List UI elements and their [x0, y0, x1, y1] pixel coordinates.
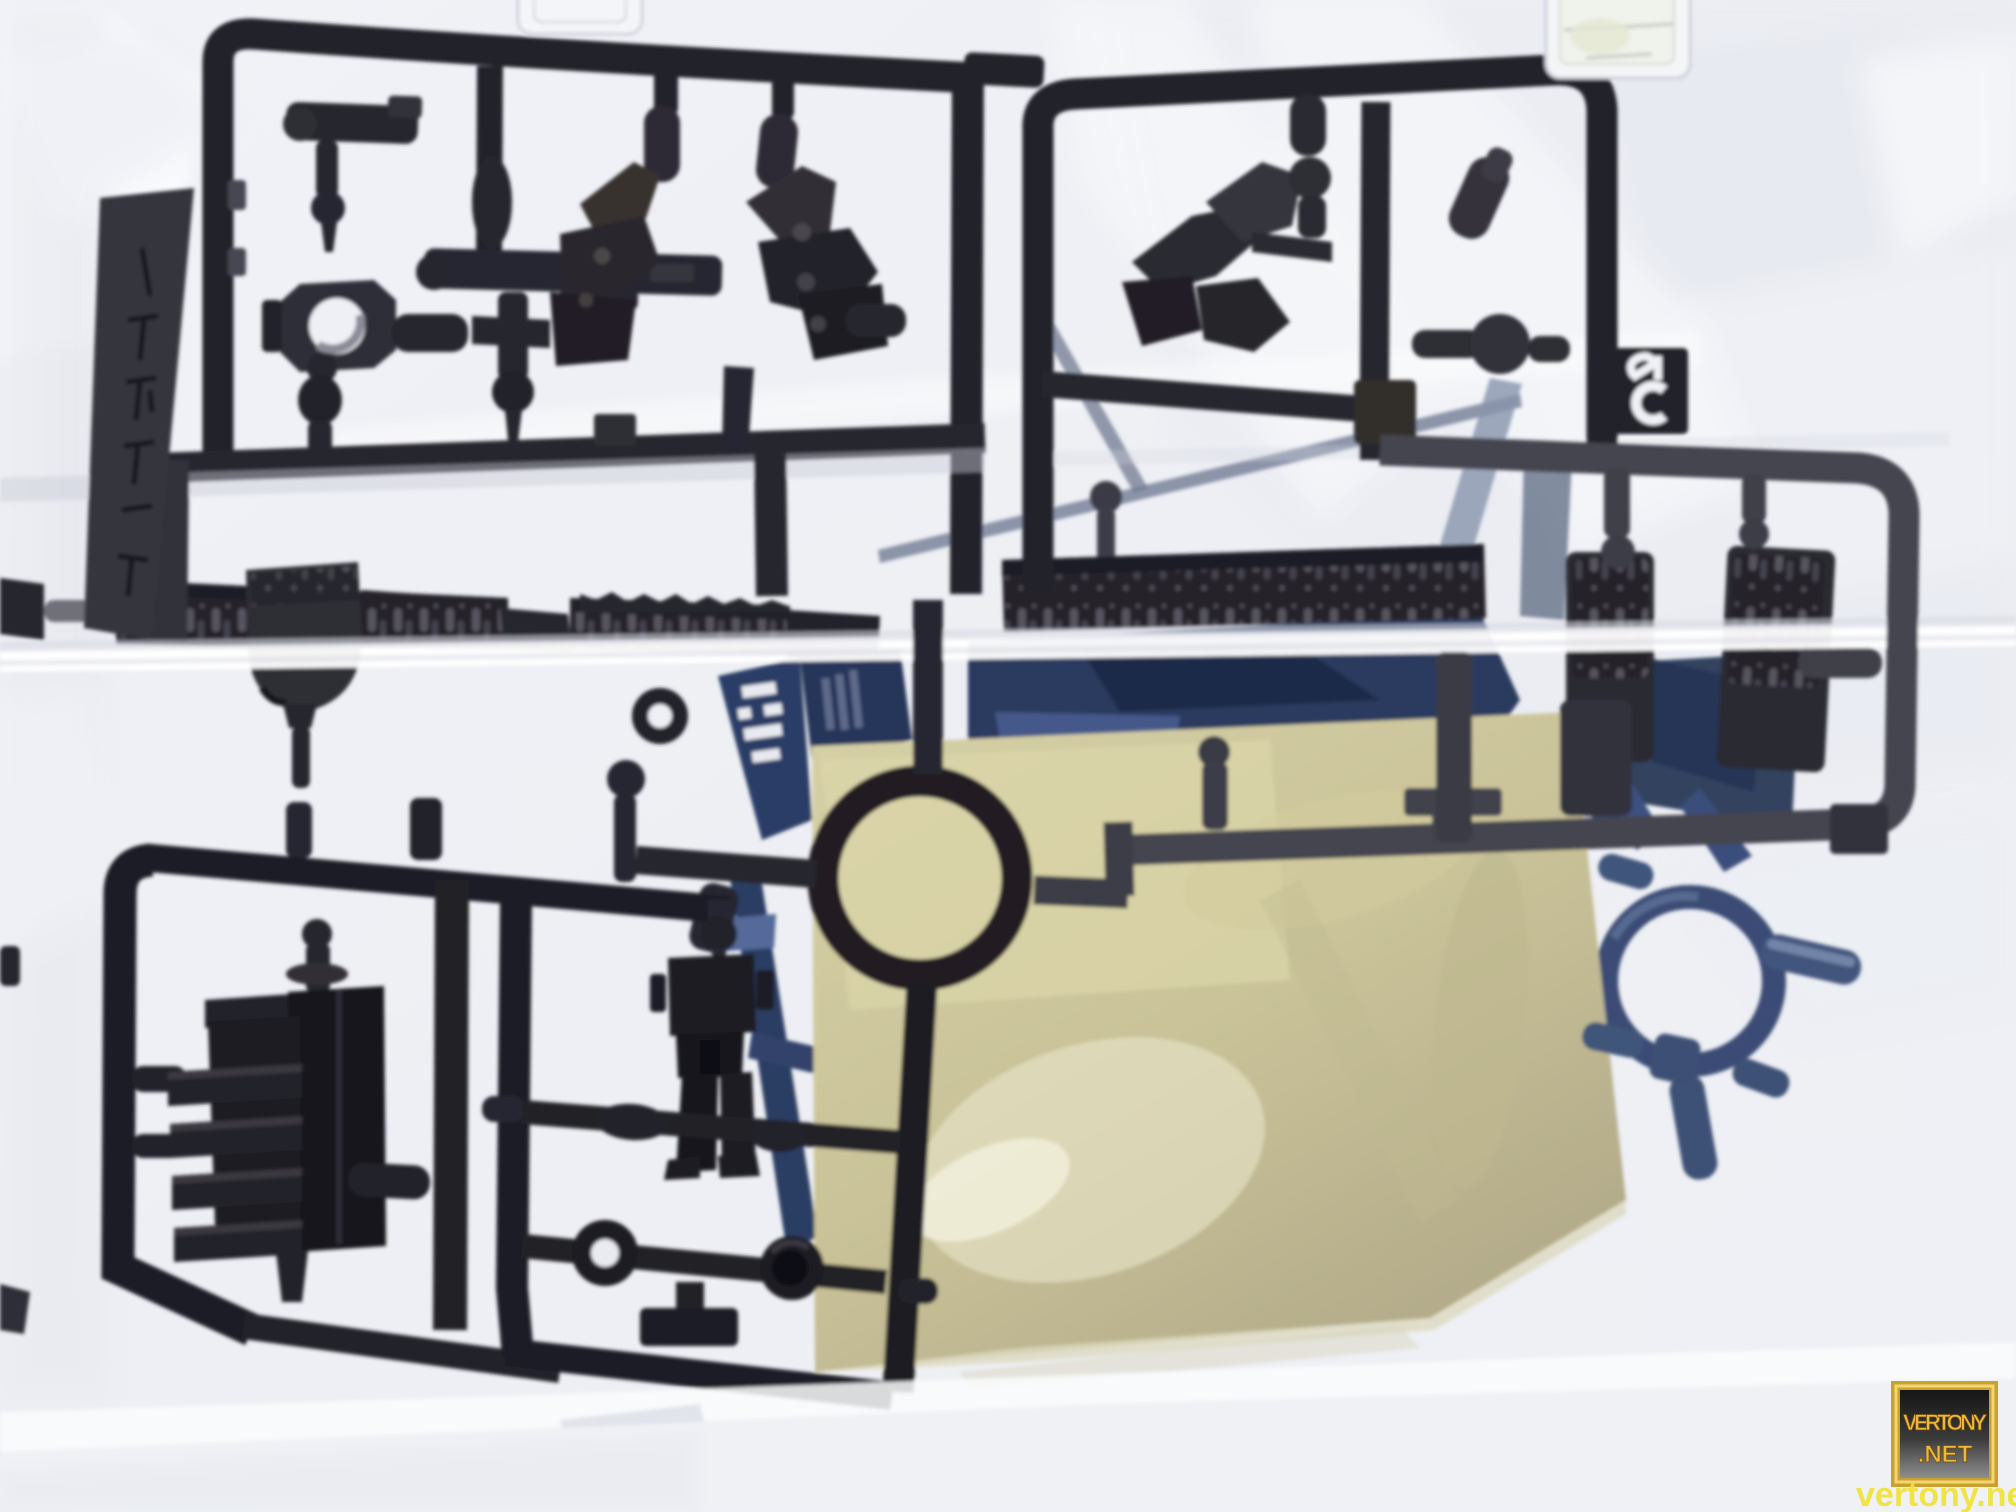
svg-text:.NET: .NET — [1918, 1441, 1973, 1468]
svg-text:VERTONY: VERTONY — [1903, 1410, 1987, 1435]
svg-text:vertony.net: vertony.net — [1856, 1476, 2016, 1512]
